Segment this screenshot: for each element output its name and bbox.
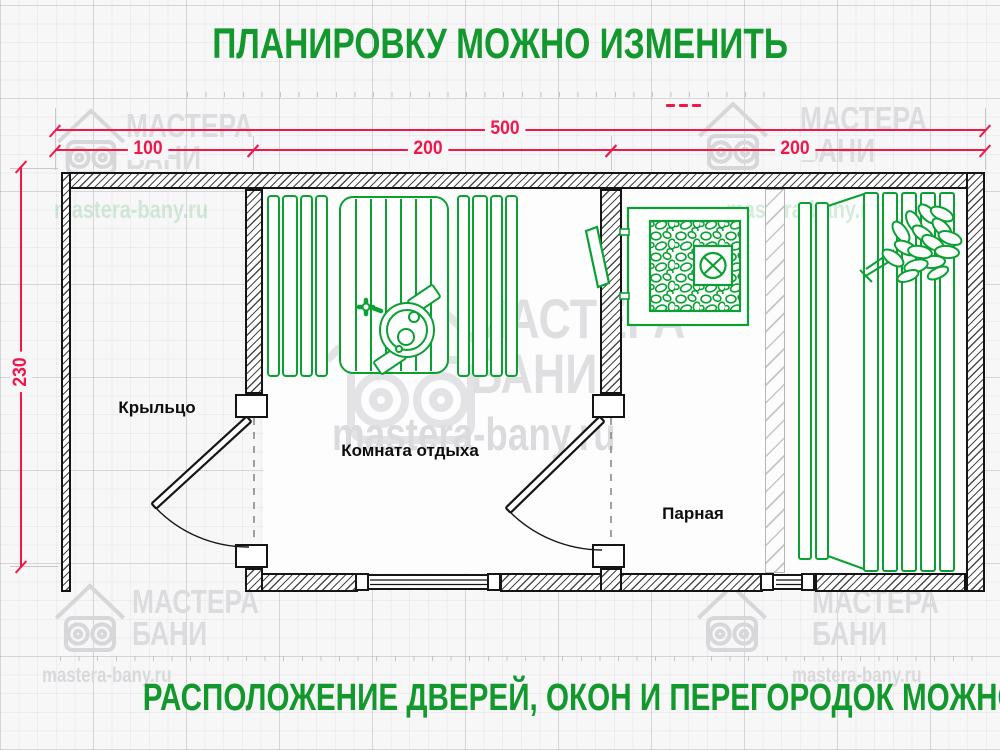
wall-bottom-segment bbox=[815, 573, 966, 592]
glass-partition bbox=[765, 189, 785, 573]
wall-top bbox=[61, 172, 985, 189]
dimension-label-steamroom-width: 200 bbox=[775, 138, 815, 160]
dimension-label-restroom-width: 200 bbox=[408, 138, 448, 160]
ruler-ticks-bottom bbox=[60, 656, 985, 661]
watermark-text: МАСТЕРА bbox=[470, 287, 685, 350]
wall-partition-steam-lower bbox=[600, 568, 622, 592]
door-frame-post bbox=[592, 394, 625, 418]
watermark-text: БАНИ bbox=[470, 342, 597, 405]
door-porch-to-restroom bbox=[152, 416, 252, 547]
door-frame-post bbox=[592, 544, 625, 568]
dimension-label-overall: 500 bbox=[485, 118, 525, 140]
extension-line bbox=[611, 136, 612, 170]
watermark-site-green-right: mastera-bany.ru bbox=[726, 198, 919, 223]
watermark-brand-top-right: МАСТЕРА БАНИ bbox=[800, 103, 959, 168]
ruler-ticks-top bbox=[187, 92, 777, 97]
wall-partition-porch-lower bbox=[245, 568, 263, 592]
cropped-dimension-remnant bbox=[666, 104, 675, 107]
extension-line bbox=[985, 108, 986, 170]
cropped-dimension-remnant bbox=[679, 104, 688, 107]
bathhouse-floor-plan-image: МАСТЕРА БАНИ МАСТЕРА БАНИ МАСТЕРА БАНИ М… bbox=[0, 0, 1000, 750]
room-label-restroom: Комната отдыха bbox=[341, 441, 479, 461]
watermark-brand-bottom-right: МАСТЕРА БАНИ bbox=[812, 586, 971, 651]
dimension-label-depth: 230 bbox=[10, 352, 32, 392]
door-frame-post bbox=[235, 394, 268, 418]
room-label-steamroom: Парная bbox=[662, 504, 724, 524]
watermark-logo-top-right bbox=[693, 93, 773, 179]
page-title: ПЛАНИРОВКУ МОЖНО ИЗМЕНИТЬ bbox=[0, 20, 1000, 69]
watermark-text: БАНИ bbox=[132, 615, 207, 652]
wall-partition-steam-upper bbox=[600, 189, 622, 394]
watermark-text: БАНИ bbox=[812, 615, 887, 652]
extension-line bbox=[10, 566, 58, 567]
bottom-caption: РАСПОЛОЖЕНИЕ ДВЕРЕЙ, ОКОН И ПЕРЕГОРОДОК … bbox=[0, 677, 1000, 720]
wall-partition-porch-upper bbox=[245, 189, 263, 394]
wall-right bbox=[966, 172, 985, 592]
wall-left-porch bbox=[61, 172, 71, 592]
room-label-porch: Крыльцо bbox=[118, 398, 195, 418]
door-frame-post bbox=[235, 544, 268, 568]
watermark-brand-bottom-left: МАСТЕРА БАНИ bbox=[132, 586, 291, 651]
window-restroom bbox=[356, 574, 500, 590]
wall-bottom-segment bbox=[500, 573, 763, 592]
watermark-site-green-left: mastera-bany.ru bbox=[54, 198, 247, 223]
dimension-label-porch-width: 100 bbox=[128, 138, 168, 160]
